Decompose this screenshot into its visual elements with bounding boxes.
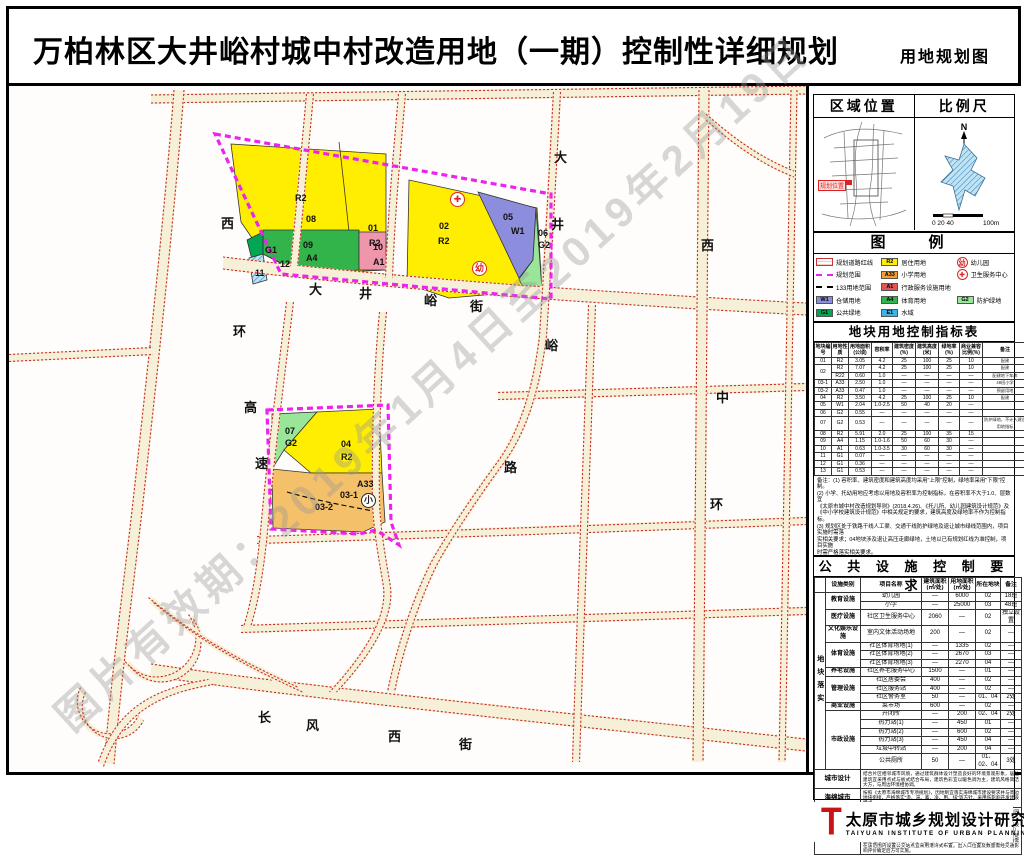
facility-cell: 400	[922, 676, 949, 685]
index-table-row: R220.601.0————配建地下车库	[815, 372, 1024, 379]
facility-cell: —	[1001, 737, 1022, 746]
index-cell: —	[916, 409, 939, 416]
facility-cell: —	[949, 676, 976, 685]
index-cell: 40	[916, 402, 939, 409]
index-cell: —	[916, 380, 939, 387]
facility-extra-label: 城市设计	[815, 770, 861, 789]
index-cell: 0.60	[849, 372, 872, 379]
index-cell: —	[893, 468, 916, 475]
index-cell: 03-2	[815, 387, 832, 394]
index-cell: —	[939, 468, 960, 475]
index-col-header: 建筑密度(%)	[893, 343, 916, 358]
index-cell: —	[916, 387, 939, 394]
facility-cell: 03	[976, 601, 1001, 610]
facility-cell: 04	[976, 659, 1001, 668]
index-cell: 1.0-1.6	[872, 438, 893, 445]
index-cell: G1	[832, 468, 849, 475]
legend-swatch: W1	[816, 296, 833, 304]
index-cell	[983, 431, 1024, 438]
index-cell: 3.05	[849, 358, 872, 365]
index-cell: 11	[815, 453, 832, 460]
facility-cell: —	[1001, 626, 1022, 642]
index-cell: 30	[893, 445, 916, 452]
index-cell: —	[960, 468, 983, 475]
facility-table-row: 商业设施菜市场600—02—	[815, 702, 1022, 711]
title-bar: 万柏林区大井峪村城中村改造用地（一期）控制性详细规划 用地规划图	[9, 9, 1018, 86]
legend-label: 行政服务设施用地	[901, 283, 951, 292]
facility-cell: 菜市场	[861, 702, 922, 711]
facility-cell: 社区养老服务中心	[861, 668, 922, 677]
index-cell: 10	[960, 358, 983, 365]
index-cell: A4	[832, 438, 849, 445]
facility-extra-text: 结合片区相邻城市风貌，通过建筑群体设计塑造良好的环境景观形象，居住建筑宜采用点式…	[861, 770, 1022, 789]
index-cell: 03-1	[815, 380, 832, 387]
index-cell: —	[939, 417, 960, 431]
facility-cell: 社区体育场地(1)	[861, 642, 922, 651]
index-table-row: 02R27.074.2251002510配建	[815, 365, 1024, 372]
legend-swatch: A33	[881, 271, 898, 279]
index-cell: 25	[893, 395, 916, 402]
legend-item: 规划道路红线	[816, 256, 881, 269]
facility-cell: 04	[976, 745, 1001, 754]
index-cell: —	[960, 387, 983, 394]
legend-swatch: E1	[881, 309, 898, 317]
facility-cell: 600	[922, 702, 949, 711]
legend-item: E1水域	[881, 306, 956, 319]
index-cell: 25	[893, 431, 916, 438]
facility-cell: 社区警务室	[861, 694, 922, 703]
index-cell: 0.63	[849, 445, 872, 452]
index-cell: 4.2	[872, 395, 893, 402]
facility-cell: 02	[976, 593, 1001, 602]
index-col-header: 商业兼容比例(%)	[960, 343, 983, 358]
facility-cell: —	[922, 728, 949, 737]
index-cell: 30	[939, 438, 960, 445]
index-table-row: 06G20.55—————	[815, 409, 1024, 416]
facility-cell: 热力站(1)	[861, 719, 922, 728]
facility-table-row: 养老设施社区养老服务中心1500—01—	[815, 668, 1022, 677]
index-cell: 配建	[983, 365, 1024, 372]
index-cell: 20	[939, 402, 960, 409]
index-cell: 3.50	[849, 395, 872, 402]
facility-cell: 02、04	[976, 711, 1001, 720]
facility-cell: 公共厕所	[861, 754, 922, 770]
facility-table-row: 市政设施开闭所—20002、042处	[815, 711, 1022, 720]
index-cell: 60	[916, 438, 939, 445]
legend-swatch: R2	[881, 258, 898, 266]
facility-cell: —	[949, 610, 976, 626]
index-cell: —	[893, 380, 916, 387]
facility-col-header: 建筑面积(㎡/处)	[922, 578, 949, 593]
index-cell: 1.15	[849, 438, 872, 445]
plan-map-canvas	[9, 86, 806, 769]
index-cell: 4.2	[872, 365, 893, 372]
facility-cell: 200	[949, 711, 976, 720]
facility-cell: 02	[976, 610, 1001, 626]
legend-label: 小学用地	[901, 270, 926, 279]
legend-label: 仓储用地	[836, 296, 861, 305]
facility-cell: —	[1001, 659, 1022, 668]
facility-cell: —	[949, 626, 976, 642]
index-cell: A33	[832, 380, 849, 387]
facility-category: 商业设施	[826, 702, 861, 711]
index-cell: 60	[916, 445, 939, 452]
legend-item: R2居住用地	[881, 256, 956, 269]
index-cell: 1.0	[872, 372, 893, 379]
index-cell: 预留用地	[983, 387, 1024, 394]
index-cell: —	[960, 460, 983, 467]
index-col-header: 地块编号	[815, 343, 832, 358]
index-cell: —	[939, 460, 960, 467]
facility-cell: 200	[922, 626, 949, 642]
facility-cell: —	[1001, 685, 1022, 694]
location-scale-box: 区域位置 比例尺	[813, 94, 1015, 232]
scale-title: 比例尺	[915, 95, 1015, 117]
facility-table-row: 体育设施社区体育场地(1)—133502—	[815, 642, 1022, 651]
side-panel: 区域位置 比例尺	[806, 86, 1021, 772]
legend-label: 公共绿地	[836, 308, 861, 317]
facility-cell: 200	[949, 745, 976, 754]
facility-cell: —	[1001, 719, 1022, 728]
index-cell: 01	[815, 358, 832, 365]
institute-name: 太原市城乡规划设计研究院	[846, 808, 1024, 830]
index-cell: 25	[893, 365, 916, 372]
index-cell: 100	[916, 395, 939, 402]
facility-category: 养老设施	[826, 668, 861, 677]
index-cell	[983, 468, 1024, 475]
kindergarten-icon: 幼	[957, 257, 968, 268]
index-cell: —	[960, 402, 983, 409]
index-cell: 25	[893, 358, 916, 365]
index-cell	[983, 460, 1024, 467]
index-cell: 15	[960, 431, 983, 438]
legend-label: 规划范围	[836, 270, 861, 279]
index-cell: —	[939, 409, 960, 416]
facility-table-row: 文化娱乐设施室内文体活动场地200—02—	[815, 626, 1022, 642]
plan-map[interactable]	[9, 86, 806, 769]
index-table-row: 12G10.36—————	[815, 460, 1024, 467]
legend-item: A1行政服务设施用地	[881, 281, 956, 294]
facility-cell: 50	[922, 694, 949, 703]
index-cell: —	[916, 460, 939, 467]
facility-cell: 社区居委会	[861, 676, 922, 685]
index-cell: —	[939, 372, 960, 379]
index-cell: 0.07	[849, 453, 872, 460]
legend-item: A4体育用地	[881, 294, 956, 307]
index-cell: —	[960, 380, 983, 387]
facility-cell: 6000	[949, 593, 976, 602]
index-table-row: 08R25.912.0251003515	[815, 431, 1024, 438]
legend-item: G1公共绿地	[816, 306, 881, 319]
legend-swatch: G1	[816, 309, 833, 317]
index-cell: 13	[815, 468, 832, 475]
index-cell: 1.0-2.5	[872, 402, 893, 409]
index-cell: 04	[815, 395, 832, 402]
facility-cell: —	[922, 659, 949, 668]
index-cell: 06	[815, 409, 832, 416]
index-cell: 1.0	[872, 387, 893, 394]
facility-table-box: 公 共 设 施 控 制 要 求 设施类别项目名称建筑面积(㎡/处)用地面积(㎡/…	[813, 556, 1015, 800]
index-cell: 50	[893, 438, 916, 445]
legend-swatch: G2	[957, 296, 974, 304]
index-cell: —	[893, 453, 916, 460]
facility-cell: —	[1001, 745, 1022, 754]
legend-item: G2防护绿地	[957, 294, 1012, 307]
legend-item: 规划范围	[816, 269, 881, 282]
facility-cell: —	[949, 702, 976, 711]
facility-cell: —	[922, 737, 949, 746]
index-cell: 配建	[983, 358, 1024, 365]
index-cell: 2.04	[849, 402, 872, 409]
index-cell: 0.55	[849, 409, 872, 416]
facility-cell: 01	[976, 719, 1001, 728]
index-cell: 30	[939, 445, 960, 452]
facility-cell: 小学	[861, 601, 922, 610]
index-cell	[983, 438, 1024, 445]
legend-label: 幼儿园	[971, 258, 990, 267]
index-cell: 09	[815, 438, 832, 445]
index-cell: —	[872, 460, 893, 467]
index-cell: 0.53	[849, 468, 872, 475]
facility-cell: —	[949, 668, 976, 677]
index-cell: 50	[893, 402, 916, 409]
index-cell: 48班小学	[983, 380, 1024, 387]
legend-swatch-road-redline	[816, 258, 833, 266]
index-table-row: 13G10.53—————	[815, 468, 1024, 475]
facility-col-header: 备注	[1001, 578, 1022, 593]
index-cell: 25	[939, 358, 960, 365]
index-cell: —	[893, 387, 916, 394]
facility-cell: 02	[976, 702, 1001, 711]
index-table-row: 10A10.631.0-3.5306030—	[815, 445, 1024, 452]
facility-cell: 垃圾中转站	[861, 745, 922, 754]
index-table-box: 地块用地控制指标表 地块编号用地性质用地面积(公顷)容积率建筑密度(%)建筑高度…	[813, 322, 1015, 556]
facility-col-header: 用地面积(㎡/处)	[949, 578, 976, 593]
index-cell: —	[960, 445, 983, 452]
index-table-row: 07G20.53—————防护绿地，不计入建设用地指标	[815, 417, 1024, 431]
index-cell: 35	[939, 431, 960, 438]
facility-cell: —	[1001, 668, 1022, 677]
index-cell: 10	[960, 395, 983, 402]
facility-cell: 04	[976, 737, 1001, 746]
index-cell	[983, 453, 1024, 460]
facility-cell: —	[922, 593, 949, 602]
scale-bar	[933, 214, 983, 217]
legend-title: 图 例	[814, 233, 1014, 254]
index-table-row: 03-1A332.501.0————48班小学	[815, 380, 1024, 387]
index-col-header: 建筑高度(米)	[916, 343, 939, 358]
index-cell	[983, 402, 1024, 409]
index-table: 地块编号用地性质用地面积(公顷)容积率建筑密度(%)建筑高度(米)绿地率(%)商…	[814, 342, 1024, 476]
facility-cell: 02	[976, 676, 1001, 685]
facility-cell: 03	[976, 651, 1001, 660]
index-cell: A33	[832, 387, 849, 394]
facility-cell: 48班	[1001, 601, 1022, 610]
clinic-cross-icon: ✚	[957, 269, 968, 280]
index-table-row: 04R23.504.2251002510配建	[815, 395, 1024, 402]
index-table-title: 地块用地控制指标表	[814, 323, 1014, 342]
facility-cell: 02	[976, 728, 1001, 737]
facility-cell: 社区服务站	[861, 685, 922, 694]
index-cell: G1	[832, 453, 849, 460]
facility-cell: —	[922, 745, 949, 754]
legend-label: 卫生服务中心	[971, 270, 1008, 279]
facility-cell: 01	[976, 668, 1001, 677]
index-cell: —	[872, 453, 893, 460]
index-cell: 08	[815, 431, 832, 438]
facility-cell: —	[949, 685, 976, 694]
facility-cell: 室内文体活动场地	[861, 626, 922, 642]
facility-table-row: 医疗设施社区卫生服务中心2060—02独立设置	[815, 610, 1022, 626]
index-col-header: 容积率	[872, 343, 893, 358]
facility-cell: 社区体育场地(2)	[861, 651, 922, 660]
index-col-header: 用地性质	[832, 343, 849, 358]
facility-cell: 热力站(3)	[861, 737, 922, 746]
facility-category: 医疗设施	[826, 610, 861, 626]
index-cell: 02	[815, 365, 832, 380]
index-cell: 配建地下车库	[983, 372, 1024, 379]
facility-category: 市政设施	[826, 711, 861, 770]
facility-cell: 热力站(2)	[861, 728, 922, 737]
scale-end: 100m	[983, 220, 999, 227]
index-cell: R2	[832, 365, 849, 372]
legend-swatch-boundary	[816, 274, 833, 276]
legend-label: 防护绿地	[977, 296, 1002, 305]
index-cell: 25	[939, 395, 960, 402]
facility-cell: —	[1001, 651, 1022, 660]
index-cell: 0.53	[849, 417, 872, 431]
drawing-type-label: 用地规划图	[900, 43, 990, 67]
page-title: 万柏林区大井峪村城中村改造用地（一期）控制性详细规划	[33, 27, 839, 71]
legend-swatch: A1	[881, 283, 898, 291]
index-cell: 07	[815, 417, 832, 431]
facility-cell: 02	[976, 626, 1001, 642]
facility-cell: —	[1001, 728, 1022, 737]
index-cell: —	[916, 453, 939, 460]
legend-item: A33小学用地	[881, 269, 956, 282]
index-cell: —	[893, 417, 916, 431]
index-table-row: 11G10.07—————	[815, 453, 1024, 460]
index-cell: —	[916, 417, 939, 431]
facility-cell: 01、02、04	[976, 754, 1001, 770]
index-col-header: 备注	[983, 343, 1024, 358]
index-cell: R2	[832, 431, 849, 438]
facility-category: 文化娱乐设施	[826, 626, 861, 642]
facility-cell: 2670	[949, 651, 976, 660]
facility-cell: 1500	[922, 668, 949, 677]
facility-category: 教育设施	[826, 593, 861, 610]
facility-extra-row: 城市设计结合片区相邻城市风貌，通过建筑群体设计塑造良好的环境景观形象，居住建筑宜…	[815, 770, 1022, 789]
facility-cell: 独立设置	[1001, 610, 1022, 626]
legend-item: 幼幼儿园	[957, 256, 1012, 269]
facility-cell: 3处	[1001, 754, 1022, 770]
index-cell: —	[960, 372, 983, 379]
sheet-frame: 万柏林区大井峪村城中村改造用地（一期）控制性详细规划 用地规划图	[6, 6, 1021, 775]
facility-side-label: 地块落实	[815, 593, 826, 770]
legend-swatch: A4	[881, 296, 898, 304]
facility-cell: 450	[949, 737, 976, 746]
facility-table-row: 管理设施社区居委会400—02—	[815, 676, 1022, 685]
index-cell: 25	[939, 365, 960, 372]
index-table-row: 05W12.041.0-2.5504020—	[815, 402, 1024, 409]
index-cell	[983, 409, 1024, 416]
index-cell: 10	[960, 365, 983, 372]
facility-cell: 1335	[949, 642, 976, 651]
index-cell: —	[960, 409, 983, 416]
facility-cell: —	[1001, 642, 1022, 651]
scale-minimap: N 0 20 40	[915, 118, 1015, 230]
north-label: N	[960, 122, 967, 132]
index-cell: 05	[815, 402, 832, 409]
index-cell: G2	[832, 417, 849, 431]
index-cell: —	[872, 417, 893, 431]
legend-label: 体育用地	[901, 296, 926, 305]
facility-cell: —	[949, 754, 976, 770]
index-cell: 7.07	[849, 365, 872, 372]
facility-cell: —	[949, 694, 976, 703]
index-cell: —	[872, 409, 893, 416]
facility-cell: —	[922, 642, 949, 651]
facility-cell: 2处	[1001, 711, 1022, 720]
index-cell: —	[872, 468, 893, 475]
index-cell: —	[939, 453, 960, 460]
legend-box: 图 例 规划道路红线规划范围133用地范围W1仓储用地G1公共绿地R2居住用地A…	[813, 232, 1015, 322]
index-cell: R2	[832, 395, 849, 402]
facility-cell: 450	[949, 719, 976, 728]
facility-cell: —	[922, 719, 949, 728]
index-cell: —	[939, 380, 960, 387]
facility-cell: 25000	[949, 601, 976, 610]
index-cell: —	[893, 409, 916, 416]
index-cell: —	[960, 417, 983, 431]
index-cell: R22	[832, 372, 849, 379]
index-cell: 2.50	[849, 380, 872, 387]
facility-cell: —	[922, 601, 949, 610]
index-cell: 防护绿地，不计入建设用地指标	[983, 417, 1024, 431]
index-cell: R2	[832, 358, 849, 365]
facility-cell: 02	[976, 642, 1001, 651]
index-cell: —	[939, 387, 960, 394]
index-cell	[983, 445, 1024, 452]
index-cell: G2	[832, 409, 849, 416]
index-cell: —	[893, 372, 916, 379]
index-cell: A1	[832, 445, 849, 452]
index-cell: 12	[815, 460, 832, 467]
index-col-header: 绿地率(%)	[939, 343, 960, 358]
index-cell: —	[960, 453, 983, 460]
legend-item	[957, 281, 1012, 294]
facility-cell: 400	[922, 685, 949, 694]
index-cell: —	[893, 460, 916, 467]
facility-cell: 600	[949, 728, 976, 737]
index-table-row: 03-2A330.471.0————预留用地	[815, 387, 1024, 394]
index-cell: 5.91	[849, 431, 872, 438]
index-table-row: 01R23.054.2251002510配建	[815, 358, 1024, 365]
index-table-notes: 备注：(1) 容积率、建筑密度和建筑高度均采用"上限"控制，绿地率采用"下限"控…	[814, 476, 1014, 559]
index-cell: 100	[916, 365, 939, 372]
facility-cell: 社区卫生服务中心	[861, 610, 922, 626]
legend-item: W1仓储用地	[816, 294, 881, 307]
facility-cell: —	[1001, 676, 1022, 685]
index-cell: 10	[815, 445, 832, 452]
facility-cell: 18班	[1001, 593, 1022, 602]
index-cell: —	[960, 438, 983, 445]
legend-label: 居住用地	[901, 258, 926, 267]
index-cell: 0.47	[849, 387, 872, 394]
facility-cell: —	[922, 711, 949, 720]
facility-category: 管理设施	[826, 676, 861, 702]
index-cell: 配建	[983, 395, 1024, 402]
